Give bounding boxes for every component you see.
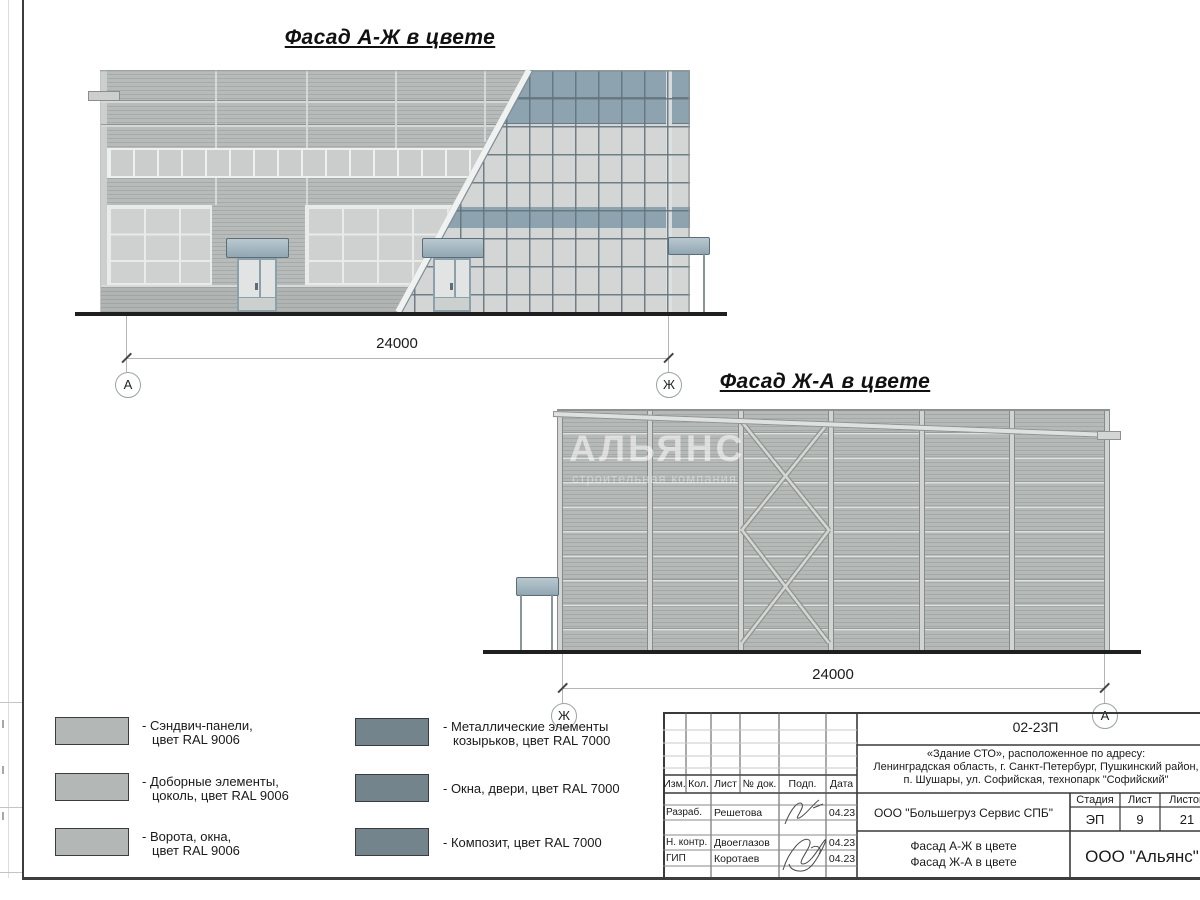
legend-line: - Композит, цвет RAL 7000 [443,836,602,850]
legend-line: - Окна, двери, цвет RAL 7000 [443,782,620,796]
door-handle [450,283,453,290]
wall-pipe [88,91,120,101]
entrance-canopy [226,238,289,258]
legend-swatch [55,717,129,745]
parapet-top-line [557,409,1110,411]
facade1-edge-lines [100,70,690,312]
stamp-project-line: п. Шушары, ул. Софийская, технопарк "Соф… [859,774,1200,786]
stamp-company: ООО "Альянс" [1070,847,1200,867]
margin-divider [0,807,22,808]
door-handle [255,283,258,290]
frame-left-line [22,0,24,879]
legend-item: - Металлические элементы козырьков, цвет… [443,720,610,748]
dimension-label: 24000 [733,666,933,683]
stamp-col-podp: Подп. [779,778,826,790]
entrance-canopy [422,238,484,258]
watermark-tagline: строительная компания [572,471,737,486]
stamp-name: Двоеглазов [714,837,770,849]
canopy-post [520,594,522,650]
stamp-role: ГИП [666,853,686,864]
stamp-project-line: Ленинградская область, г. Санкт-Петербур… [859,761,1200,773]
stamp-date: 04.23 [827,807,857,819]
legend-line: - Ворота, окна, [142,830,240,844]
stamp-sheet-title: Фасад Ж-А в цвете [857,855,1070,869]
legend-item: - Композит, цвет RAL 7000 [443,836,602,850]
legend-item: - Окна, двери, цвет RAL 7000 [443,782,620,796]
legend-swatch [55,773,129,801]
door-kick-panel [239,297,275,310]
stamp-col-kol: Кол. [686,778,711,790]
margin-divider [0,702,22,703]
legend-item: - Доборные элементы, цоколь, цвет RAL 90… [142,775,289,803]
stamp-doc-number: 02-23П [857,719,1200,735]
facade2-title: Фасад Ж-А в цвете [675,370,975,394]
ground-line [75,312,727,316]
facade2-drawing: АЛЬЯНС строительная компания [557,410,1110,650]
stamp-list-label: Лист [1120,794,1160,806]
door-kick-panel [435,297,469,310]
stamp-date: 04.23 [827,853,857,865]
canopy-post [551,594,553,650]
stamp-name: Коротаев [714,853,759,865]
facade1-title: Фасад А-Ж в цвете [240,26,540,50]
extension-line [668,316,669,372]
extension-line [1104,654,1105,704]
legend-line: цвет RAL 9006 [142,844,240,858]
stamp-col-list: Лист [711,778,740,790]
stamp-date: 04.23 [827,837,857,849]
legend-line: - Доборные элементы, [142,775,289,789]
dimension-label: 24000 [297,335,497,352]
stamp-col-izm: Изм. [663,778,686,790]
canopy-post [703,253,705,312]
dimension-line [562,688,1104,689]
entrance-door [433,258,471,312]
stamp-listov-value: 21 [1160,812,1200,827]
stamp-list-value: 9 [1120,812,1160,827]
legend-line: цоколь, цвет RAL 9006 [142,789,289,803]
legend-line: козырьков, цвет RAL 7000 [443,734,610,748]
stamp-project-line: «Здание СТО», расположенное по адресу: [859,748,1200,760]
legend-line: - Металлические элементы [443,720,610,734]
legend-swatch [355,828,429,856]
watermark-logo: АЛЬЯНС [569,428,745,470]
legend-item: - Сэндвич-панели, цвет RAL 9006 [142,719,253,747]
stamp-listov-label: Листов [1160,794,1200,806]
stamp-client: ООО "Большегруз Сервис СПБ" [857,806,1070,820]
axis-bubble-a: А [115,372,141,398]
stamp-role: Разраб. [666,807,702,818]
stamp-name: Решетова [714,807,762,819]
facade1-drawing [100,70,690,312]
stamp-stage-label: Стадия [1070,794,1120,806]
stamp-role: Н. контр. [666,837,707,848]
stamp-col-ndok: № док. [740,778,779,790]
margin-divider [0,872,22,873]
dimension-line [126,358,668,359]
legend-item: - Ворота, окна, цвет RAL 9006 [142,830,240,858]
legend-line: цвет RAL 9006 [142,733,253,747]
stamp-sheet-title: Фасад А-Ж в цвете [857,839,1070,853]
signature [783,800,826,871]
extension-line [562,654,563,704]
legend-swatch [355,718,429,746]
margin-mark [2,720,4,728]
margin-mark [2,766,4,774]
ground-line [483,650,1141,654]
margin-mark [2,812,4,820]
legend-line: - Сэндвич-панели, [142,719,253,733]
margin-inner-line [8,0,9,878]
entrance-door [237,258,277,312]
stamp-stage-value: ЭП [1070,812,1120,827]
legend-swatch [355,774,429,802]
drawing-sheet: Фасад А-Ж в цвете [0,0,1200,900]
legend-swatch [55,828,129,856]
stamp-col-data: Дата [826,778,857,790]
extension-line [126,316,127,372]
roof-beam-bracket [1097,431,1121,440]
